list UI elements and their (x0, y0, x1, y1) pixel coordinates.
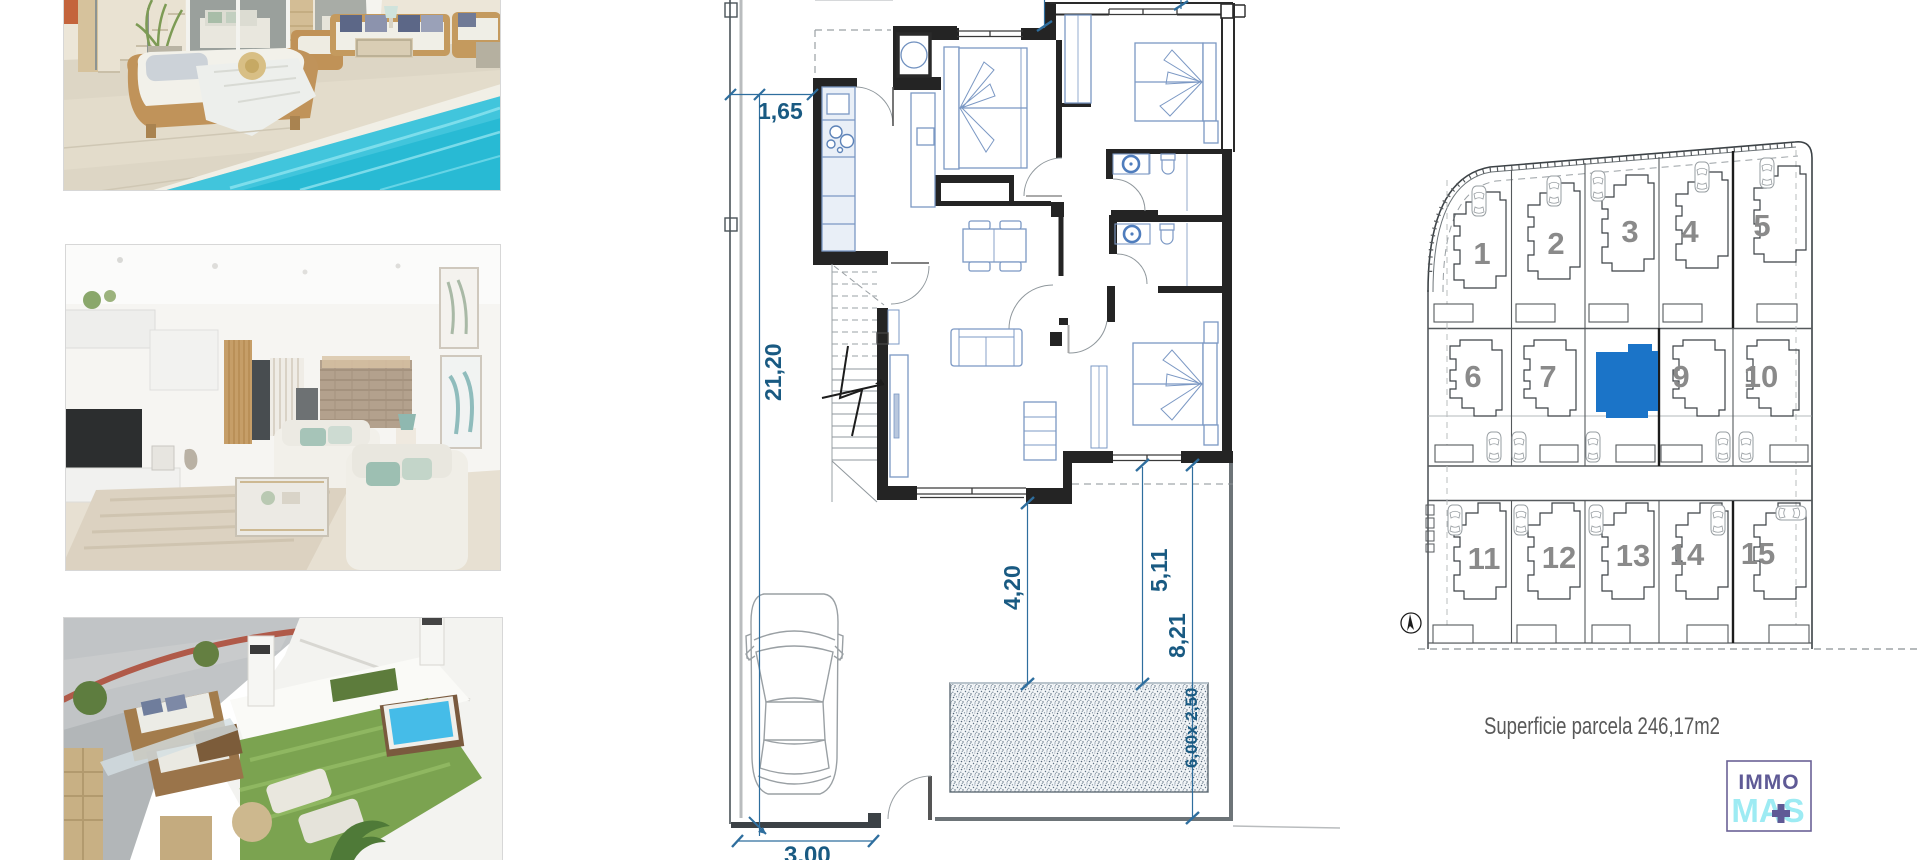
svg-text:5,11: 5,11 (1146, 548, 1172, 592)
svg-text:6: 6 (1464, 359, 1481, 394)
svg-text:3,00: 3,00 (784, 842, 831, 860)
svg-text:13: 13 (1616, 538, 1650, 573)
svg-text:10: 10 (1744, 359, 1778, 394)
svg-text:12: 12 (1542, 540, 1576, 575)
svg-text:MAS: MAS (1731, 792, 1804, 829)
svg-text:4,20: 4,20 (999, 565, 1025, 610)
svg-text:9: 9 (1672, 359, 1689, 394)
svg-text:15: 15 (1741, 536, 1775, 571)
svg-text:11: 11 (1468, 541, 1501, 576)
svg-text:6,00x 2,50: 6,00x 2,50 (1182, 688, 1201, 768)
svg-text:2: 2 (1547, 226, 1564, 261)
svg-text:1: 1 (1473, 236, 1490, 271)
svg-text:14: 14 (1670, 537, 1705, 572)
svg-text:7: 7 (1539, 359, 1556, 394)
svg-text:3: 3 (1621, 214, 1638, 249)
svg-text:5: 5 (1753, 208, 1770, 243)
svg-text:8,21: 8,21 (1164, 613, 1190, 658)
svg-text:21,20: 21,20 (760, 343, 786, 401)
svg-text:Superficie parcela 246,17m2: Superficie parcela 246,17m2 (1484, 713, 1720, 740)
svg-text:IMMO: IMMO (1738, 771, 1799, 794)
svg-text:1,65: 1,65 (758, 98, 803, 124)
svg-text:4: 4 (1681, 214, 1699, 249)
